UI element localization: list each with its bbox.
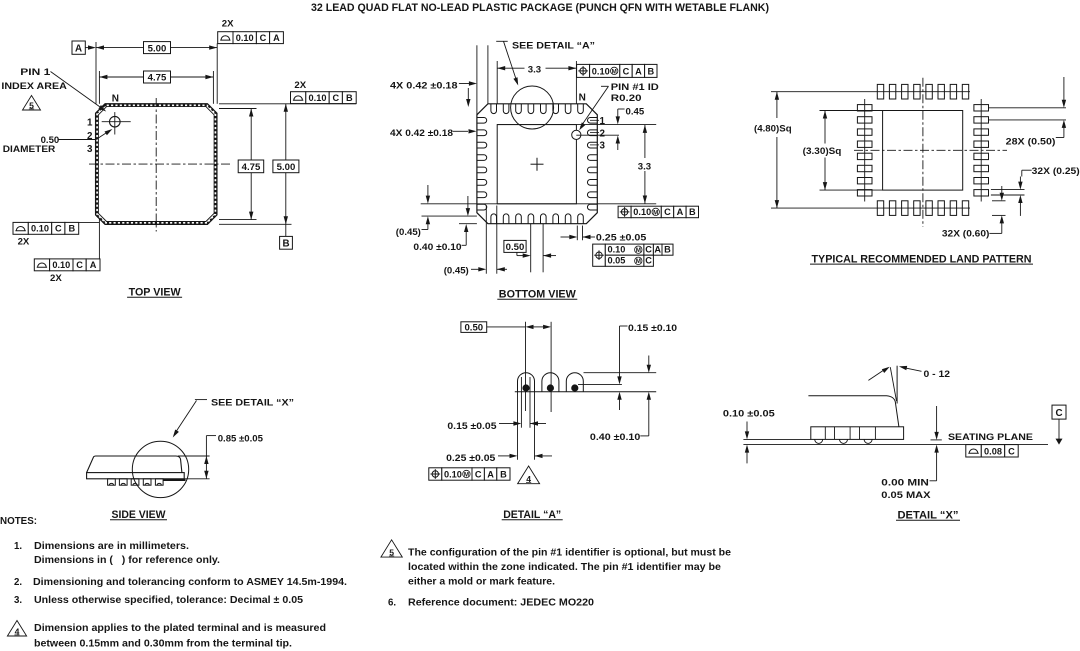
svg-text:B: B bbox=[500, 470, 507, 480]
svg-text:6.: 6. bbox=[388, 598, 396, 609]
svg-text:(3.30)Sq: (3.30)Sq bbox=[803, 146, 842, 157]
svg-text:0.00 MIN: 0.00 MIN bbox=[881, 478, 929, 489]
svg-text:N: N bbox=[579, 92, 586, 103]
svg-text:(4.80)Sq: (4.80)Sq bbox=[754, 124, 792, 135]
svg-text:0.50: 0.50 bbox=[464, 322, 483, 333]
svg-text:SEATING PLANE: SEATING PLANE bbox=[948, 432, 1034, 443]
svg-text:The configuration of the pin #: The configuration of the pin #1 identifi… bbox=[408, 547, 732, 558]
svg-text:R0.20: R0.20 bbox=[611, 93, 642, 104]
svg-text:DETAIL “A”: DETAIL “A” bbox=[503, 509, 561, 521]
svg-text:A: A bbox=[677, 207, 684, 217]
svg-text:M: M bbox=[636, 258, 641, 265]
svg-text:A: A bbox=[75, 44, 82, 55]
svg-text:C: C bbox=[1055, 408, 1062, 419]
svg-text:Unless otherwise specified, to: Unless otherwise specified, tolerance: D… bbox=[34, 595, 304, 606]
svg-text:1: 1 bbox=[87, 117, 93, 128]
svg-text:32X (0.25): 32X (0.25) bbox=[1032, 166, 1080, 177]
svg-text:5.00: 5.00 bbox=[277, 162, 296, 173]
svg-text:0.10: 0.10 bbox=[236, 33, 254, 43]
svg-text:B: B bbox=[664, 245, 671, 255]
svg-text:M: M bbox=[636, 247, 641, 254]
svg-text:2X: 2X bbox=[50, 273, 62, 284]
svg-text:C: C bbox=[76, 260, 83, 270]
svg-text:(0.45): (0.45) bbox=[396, 227, 421, 238]
svg-text:0.05: 0.05 bbox=[608, 256, 626, 266]
svg-text:C: C bbox=[1008, 446, 1015, 456]
svg-text:0.25 ±0.05: 0.25 ±0.05 bbox=[596, 233, 647, 244]
svg-text:3.: 3. bbox=[14, 595, 22, 606]
svg-text:0.40 ±0.10: 0.40 ±0.10 bbox=[590, 432, 640, 443]
svg-text:A: A bbox=[635, 67, 642, 77]
svg-text:A: A bbox=[487, 470, 494, 480]
svg-text:C: C bbox=[260, 33, 267, 43]
svg-text:0.10: 0.10 bbox=[52, 260, 70, 270]
svg-text:32 LEAD QUAD FLAT NO-LEAD PLAS: 32 LEAD QUAD FLAT NO-LEAD PLASTIC PACKAG… bbox=[311, 2, 769, 14]
svg-text:M: M bbox=[653, 209, 658, 216]
svg-text:2: 2 bbox=[600, 128, 606, 139]
svg-text:3.3: 3.3 bbox=[528, 65, 541, 76]
svg-text:1: 1 bbox=[600, 116, 606, 127]
svg-text:0.10: 0.10 bbox=[444, 470, 462, 480]
svg-text:2X: 2X bbox=[222, 19, 234, 30]
svg-text:3.3: 3.3 bbox=[638, 162, 651, 173]
svg-text:0.10: 0.10 bbox=[608, 245, 626, 255]
svg-text:0.10: 0.10 bbox=[309, 93, 327, 103]
svg-text:5.00: 5.00 bbox=[148, 43, 167, 54]
svg-text:Dimensioning and tolerancing c: Dimensioning and tolerancing conform to … bbox=[33, 577, 347, 588]
svg-text:B: B bbox=[68, 224, 75, 234]
svg-text:2: 2 bbox=[87, 131, 93, 142]
svg-text:4X 0.42 ±0.18: 4X 0.42 ±0.18 bbox=[390, 128, 454, 139]
svg-text:C: C bbox=[664, 207, 671, 217]
svg-text:Dimensions in ( ) for refere: Dimensions in ( ) for reference only. bbox=[34, 555, 220, 566]
svg-text:C: C bbox=[55, 224, 62, 234]
svg-text:(0.45): (0.45) bbox=[444, 266, 469, 277]
svg-text:Dimensions are in millimeters.: Dimensions are in millimeters. bbox=[34, 541, 189, 552]
svg-text:4X 0.42 ±0.18: 4X 0.42 ±0.18 bbox=[390, 81, 458, 92]
svg-text:Dimension applies to the plate: Dimension applies to the plated terminal… bbox=[34, 623, 326, 634]
svg-text:B: B bbox=[282, 239, 289, 250]
svg-text:PIN #1 ID: PIN #1 ID bbox=[611, 82, 659, 93]
svg-text:0 - 12: 0 - 12 bbox=[924, 369, 951, 380]
svg-text:0.10: 0.10 bbox=[592, 67, 610, 77]
svg-text:TYPICAL RECOMMENDED LAND PATTE: TYPICAL RECOMMENDED LAND PATTERN bbox=[812, 253, 1032, 265]
svg-text:0.25 ±0.05: 0.25 ±0.05 bbox=[446, 453, 496, 464]
svg-text:M: M bbox=[612, 68, 617, 75]
svg-text:0.45: 0.45 bbox=[626, 106, 645, 117]
svg-text:3: 3 bbox=[600, 141, 606, 152]
svg-text:M: M bbox=[464, 471, 469, 478]
svg-text:DIAMETER: DIAMETER bbox=[3, 144, 56, 155]
svg-text:N: N bbox=[112, 93, 119, 104]
svg-text:28X (0.50): 28X (0.50) bbox=[1006, 137, 1056, 148]
svg-text:PIN 1: PIN 1 bbox=[20, 67, 51, 78]
svg-text:TOP VIEW: TOP VIEW bbox=[129, 287, 182, 299]
svg-text:1.: 1. bbox=[14, 541, 22, 552]
svg-text:2X: 2X bbox=[18, 237, 30, 248]
svg-text:32X (0.60): 32X (0.60) bbox=[942, 229, 990, 240]
svg-text:BOTTOM VIEW: BOTTOM VIEW bbox=[499, 289, 577, 301]
svg-text:SIDE VIEW: SIDE VIEW bbox=[112, 509, 167, 521]
svg-text:2.: 2. bbox=[14, 577, 22, 588]
svg-text:0.40 ±0.10: 0.40 ±0.10 bbox=[413, 242, 461, 253]
svg-text:4.75: 4.75 bbox=[148, 73, 167, 84]
svg-text:located within the zone indica: located within the zone indicated. The p… bbox=[408, 562, 722, 573]
svg-text:3: 3 bbox=[87, 144, 93, 155]
svg-text:C: C bbox=[332, 93, 339, 103]
svg-text:between 0.15mm and 0.30mm from: between 0.15mm and 0.30mm from the termi… bbox=[34, 639, 292, 650]
svg-text:A: A bbox=[90, 260, 97, 270]
svg-text:0.10: 0.10 bbox=[31, 224, 49, 234]
svg-text:C: C bbox=[645, 256, 652, 266]
svg-text:0.15 ±0.10: 0.15 ±0.10 bbox=[628, 323, 677, 334]
svg-text:0.15 ±0.05: 0.15 ±0.05 bbox=[447, 421, 497, 432]
svg-text:4.75: 4.75 bbox=[242, 162, 261, 173]
svg-text:Reference document: JEDEC MO22: Reference document: JEDEC MO220 bbox=[408, 598, 594, 609]
svg-text:0.10: 0.10 bbox=[633, 207, 651, 217]
svg-text:DETAIL “X”: DETAIL “X” bbox=[898, 510, 959, 522]
svg-text:0.05 MAX: 0.05 MAX bbox=[881, 490, 931, 501]
svg-text:A: A bbox=[273, 33, 280, 43]
svg-text:B: B bbox=[647, 67, 654, 77]
svg-text:C: C bbox=[475, 470, 482, 480]
svg-text:SEE DETAIL “A”: SEE DETAIL “A” bbox=[512, 41, 595, 52]
svg-text:A: A bbox=[654, 245, 661, 255]
svg-text:0.85 ±0.05: 0.85 ±0.05 bbox=[218, 433, 264, 444]
svg-text:B: B bbox=[689, 207, 696, 217]
svg-text:INDEX AREA: INDEX AREA bbox=[1, 81, 66, 92]
svg-text:SEE DETAIL “X”: SEE DETAIL “X” bbox=[211, 398, 294, 409]
svg-text:either a mold or mark feature.: either a mold or mark feature. bbox=[408, 577, 555, 588]
svg-text:C: C bbox=[623, 67, 630, 77]
svg-text:0.10 ±0.05: 0.10 ±0.05 bbox=[723, 408, 776, 419]
svg-text:0.50: 0.50 bbox=[506, 242, 525, 253]
svg-text:2X: 2X bbox=[294, 80, 306, 91]
svg-text:NOTES:: NOTES: bbox=[0, 516, 37, 527]
svg-text:C: C bbox=[645, 245, 652, 255]
svg-text:0.08: 0.08 bbox=[984, 446, 1002, 456]
svg-text:B: B bbox=[346, 93, 353, 103]
